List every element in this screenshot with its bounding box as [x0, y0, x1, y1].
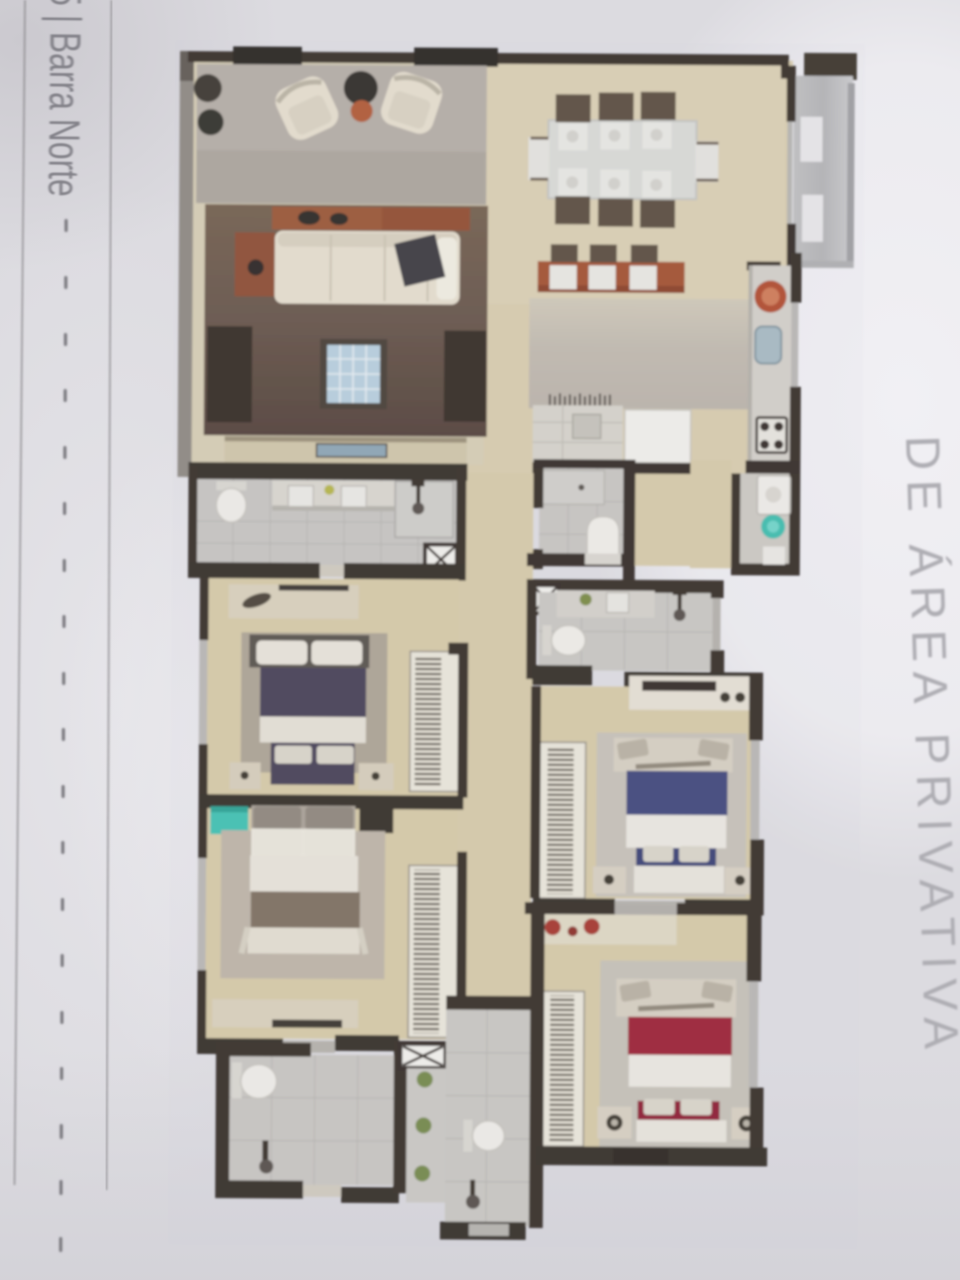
svg-text:5 | Barra Norte: 5 | Barra Norte [39, 0, 89, 197]
